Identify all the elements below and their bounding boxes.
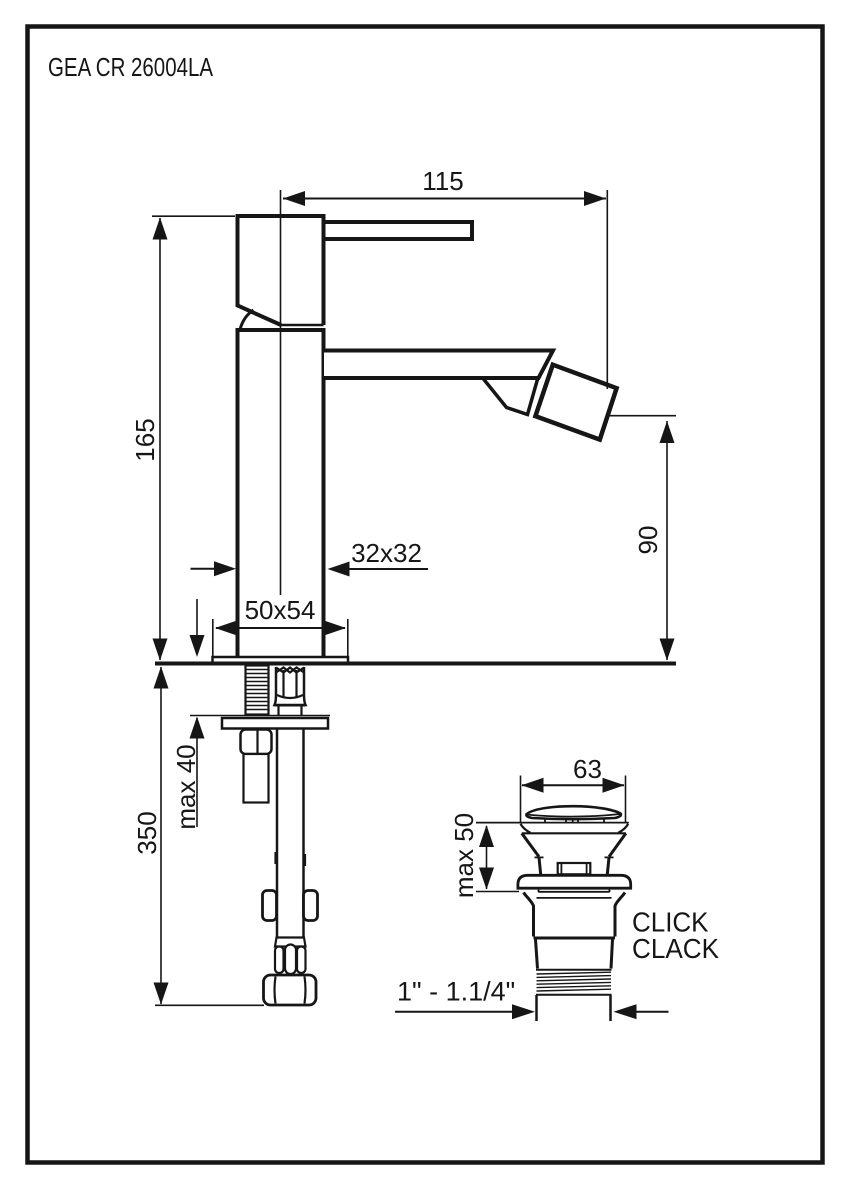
svg-text:165: 165 (130, 418, 160, 461)
svg-text:GEA CR 26004LA: GEA CR 26004LA (48, 52, 214, 82)
svg-text:63: 63 (573, 754, 602, 784)
svg-text:50x54: 50x54 (245, 595, 316, 625)
svg-text:90: 90 (633, 526, 663, 555)
svg-text:max 50: max 50 (449, 813, 479, 898)
svg-text:115: 115 (422, 166, 463, 196)
svg-text:350: 350 (132, 811, 162, 854)
svg-text:CLACK: CLACK (632, 933, 719, 964)
svg-text:32x32: 32x32 (351, 538, 422, 568)
svg-text:max 40: max 40 (171, 744, 201, 829)
svg-text:1" - 1.1/4": 1" - 1.1/4" (397, 977, 515, 1007)
